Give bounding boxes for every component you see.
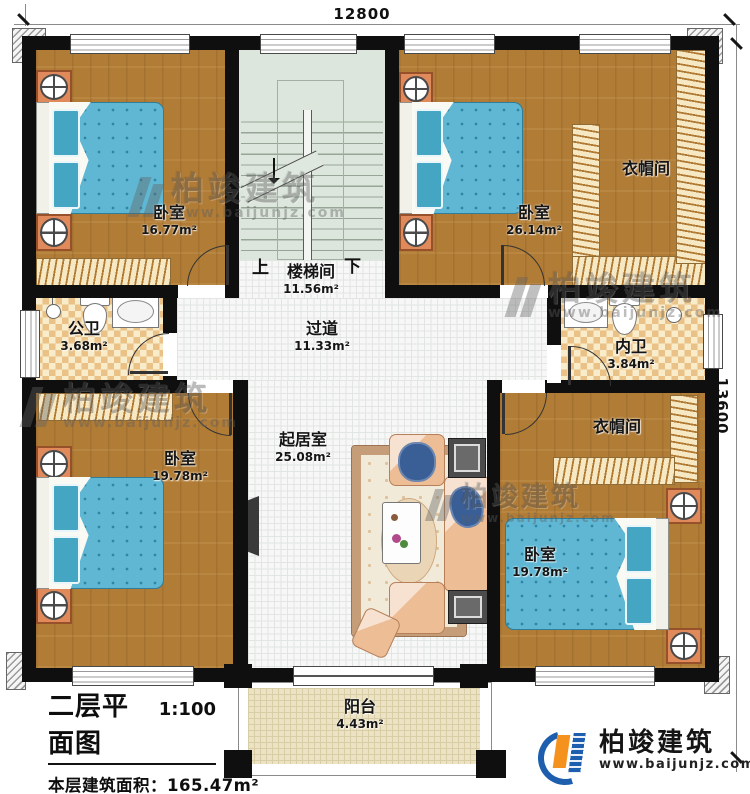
lamp-icon: [403, 218, 429, 247]
closet: [36, 258, 171, 287]
window: [404, 34, 495, 54]
right-dimension-line: [736, 24, 737, 772]
pillow: [52, 484, 80, 532]
room-label-balcony: 阳台 4.43m²: [320, 698, 400, 731]
wall-segment: [399, 285, 500, 298]
room-name: 内卫: [596, 338, 666, 357]
brand-url: www.baijunjz.com: [599, 757, 750, 772]
nightstand: [666, 628, 702, 664]
closet: [553, 457, 675, 485]
coffee-table: [382, 502, 421, 564]
plan-scale: 1:100: [159, 699, 216, 720]
wall-stair-right: [385, 36, 399, 298]
room-label-cloak-tr: 衣帽间: [601, 160, 691, 179]
side-table-top: [454, 596, 482, 618]
title-block: 二层平面图 1:100 本层建筑面积：165.47m² 层高：3.1m: [48, 686, 259, 794]
room-label-stairwell: 楼梯间 11.56m²: [246, 263, 376, 296]
flowers: [391, 514, 398, 521]
room-area: 3.68m²: [49, 339, 119, 353]
room-label-hallway: 过道 11.33m²: [282, 320, 362, 353]
stair-stringer: [303, 110, 312, 260]
sink: [112, 295, 159, 328]
room-label-bedroom-br: 卧室 19.78m²: [500, 546, 580, 579]
room-name: 阳台: [320, 698, 400, 717]
lamp-icon: [40, 74, 68, 100]
lamp-icon: [40, 591, 68, 620]
pillow: [52, 109, 80, 157]
window: [70, 34, 190, 54]
side-table: [448, 590, 488, 624]
pillow: [52, 536, 80, 584]
tv: [248, 496, 259, 556]
floor-hallway: [177, 298, 547, 380]
room-area: 19.78m²: [500, 565, 580, 579]
nightstand: [36, 214, 72, 251]
nightstand: [666, 488, 702, 524]
nightstand: [399, 72, 433, 106]
lamp-icon: [670, 632, 698, 660]
room-area: 16.77m²: [129, 223, 209, 237]
room-name: 楼梯间: [246, 263, 376, 282]
room-area: 25.08m²: [263, 450, 343, 464]
bed: [36, 102, 164, 214]
lamp-icon: [40, 450, 68, 478]
room-label-bedroom-tl: 卧室 16.77m²: [129, 204, 209, 237]
nightstand: [36, 70, 72, 104]
window: [260, 34, 357, 54]
room-name: 卧室: [129, 204, 209, 223]
basin: [117, 300, 154, 323]
toilet-bowl: [612, 303, 637, 335]
toilet: [609, 294, 640, 335]
door-opening: [547, 345, 561, 383]
headboard: [654, 518, 669, 630]
lamp-icon: [670, 492, 698, 520]
room-label-bedroom-bl: 卧室 19.78m²: [140, 450, 220, 483]
room-area: 11.56m²: [246, 282, 376, 296]
floor-area-line: 本层建筑面积：165.47m²: [48, 772, 259, 794]
pillow: [625, 525, 653, 573]
door-opening: [500, 285, 548, 298]
sink: [564, 297, 608, 328]
wall-segment: [22, 285, 178, 298]
room-name: 过道: [282, 320, 362, 339]
room-name: 起居室: [263, 431, 343, 450]
wall-segment: [548, 285, 719, 298]
wall-living-right: [487, 380, 500, 668]
flowers: [400, 540, 408, 548]
window: [20, 310, 40, 378]
window: [579, 34, 671, 54]
room-label-living: 起居室 25.08m²: [263, 431, 343, 464]
room-name: 卧室: [140, 450, 220, 469]
room-name: 衣帽间: [601, 160, 691, 179]
shower-head-icon: [666, 307, 682, 323]
closet: [572, 124, 600, 266]
stair-direction-arrow-head: [268, 178, 280, 190]
top-dimension-value: 12800: [322, 5, 402, 23]
person: [398, 442, 436, 482]
room-label-private-bath: 内卫 3.84m²: [596, 338, 666, 371]
floor-plan: 12800 13600: [0, 0, 750, 794]
pillow: [415, 161, 443, 209]
lamp-icon: [40, 218, 68, 247]
room-area: 3.84m²: [596, 357, 666, 371]
closet: [676, 50, 707, 264]
window: [535, 666, 655, 686]
pillar: [476, 750, 506, 778]
door-opening: [178, 285, 225, 298]
basin: [569, 302, 603, 323]
plan-title: 二层平面图: [48, 686, 147, 760]
stair-direction-arrow: [273, 158, 275, 178]
pillow: [415, 109, 443, 157]
room-label-bedroom-tr: 卧室 26.14m²: [494, 204, 574, 237]
wall-segment: [547, 285, 561, 345]
wall-living-left: [233, 380, 248, 668]
top-dimension-line: [14, 24, 740, 25]
window: [703, 314, 723, 369]
room-area: 4.43m²: [320, 717, 400, 731]
plan-title-row: 二层平面图 1:100: [48, 686, 216, 765]
window: [72, 666, 194, 686]
side-table-top: [454, 444, 480, 472]
room-name: 衣帽间: [572, 418, 662, 437]
room-area: 26.14m²: [494, 223, 574, 237]
room-label-public-bath: 公卫 3.68m²: [49, 320, 119, 353]
brand-logo: 柏竣建筑 www.baijunjz.com: [538, 724, 750, 778]
ceiling-lamp-icon: [46, 304, 61, 319]
side-table: [448, 438, 486, 478]
brand-name: 柏竣建筑: [599, 730, 750, 757]
room-name: 卧室: [494, 204, 574, 223]
room-label-cloak-br: 衣帽间: [572, 418, 662, 437]
brand-text: 柏竣建筑 www.baijunjz.com: [599, 730, 750, 772]
room-area: 19.78m²: [140, 469, 220, 483]
lamp-icon: [403, 76, 429, 102]
room-name: 卧室: [500, 546, 580, 565]
bed: [399, 102, 523, 214]
nightstand: [399, 214, 433, 251]
pillow: [625, 577, 653, 625]
nightstand: [36, 587, 72, 624]
bed: [36, 477, 164, 589]
door-opening: [502, 380, 545, 393]
door-opening: [187, 380, 233, 393]
pillar: [224, 664, 252, 688]
sliding-door: [293, 666, 434, 686]
room-area: 11.33m²: [282, 339, 362, 353]
wall-segment: [163, 285, 177, 333]
closet: [38, 393, 173, 421]
brand-logo-icon: [538, 724, 590, 778]
pillar: [460, 664, 488, 688]
wall-segment: [22, 380, 187, 393]
room-name: 公卫: [49, 320, 119, 339]
pillow: [52, 161, 80, 209]
